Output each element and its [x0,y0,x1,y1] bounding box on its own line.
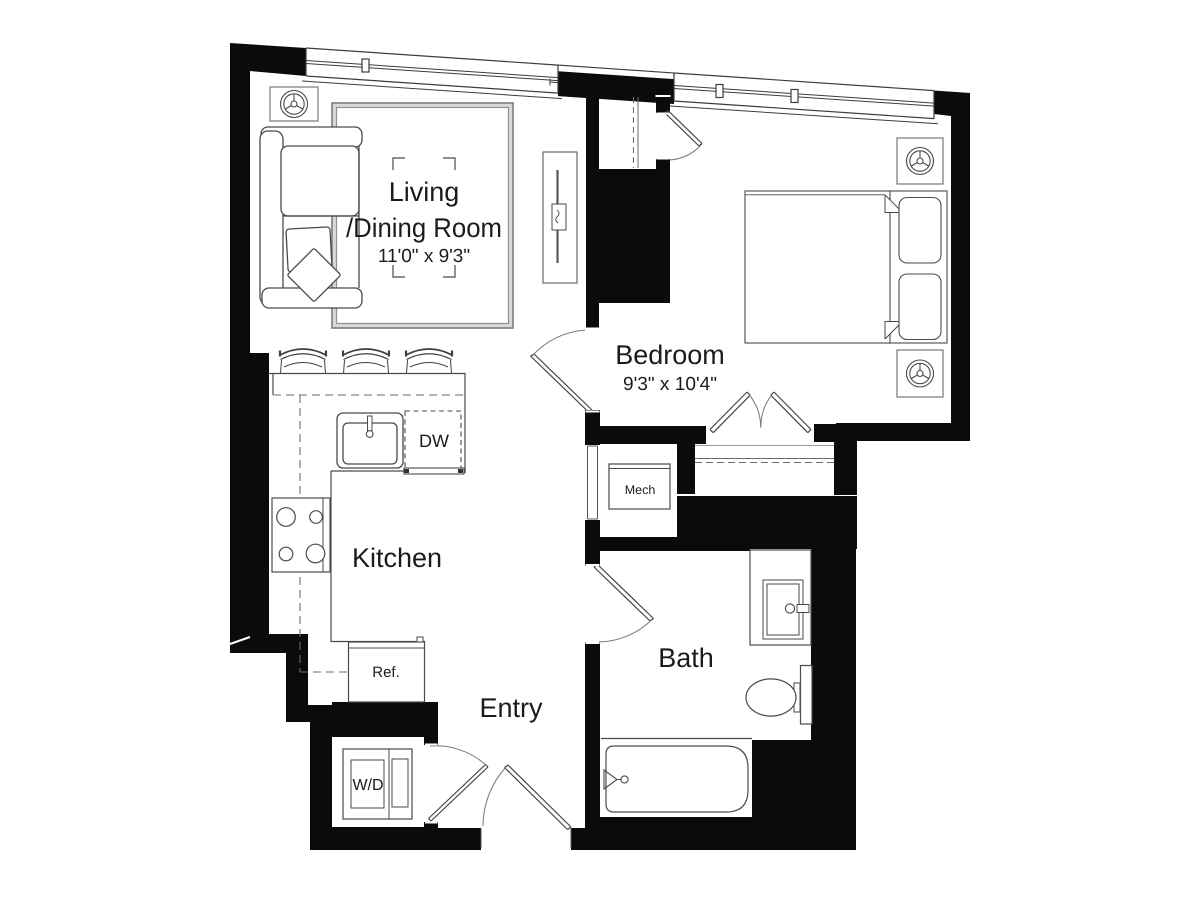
svg-text:Bath: Bath [658,643,714,673]
svg-text:Bedroom: Bedroom [615,340,725,370]
svg-text:W/D: W/D [352,777,383,794]
svg-text:DW: DW [419,431,449,451]
svg-text:Mech: Mech [625,483,656,497]
svg-text:Entry: Entry [479,693,543,723]
svg-text:/Dining Room: /Dining Room [346,213,502,243]
svg-text:Kitchen: Kitchen [352,543,442,573]
svg-text:11'0" x 9'3": 11'0" x 9'3" [378,246,470,267]
svg-text:Living: Living [389,177,460,207]
svg-text:Ref.: Ref. [372,664,400,681]
svg-text:9'3" x 10'4": 9'3" x 10'4" [623,374,717,395]
